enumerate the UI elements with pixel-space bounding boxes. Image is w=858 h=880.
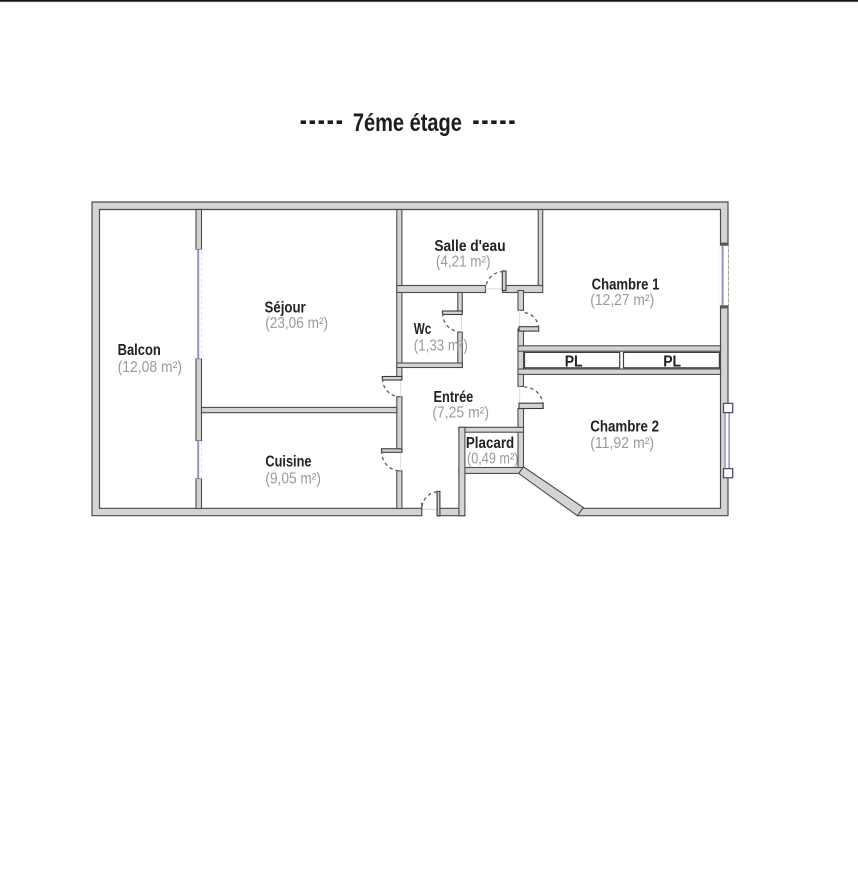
svg-text:(4,21 m²): (4,21 m²) — [436, 254, 491, 271]
svg-text:(12,27 m²): (12,27 m²) — [590, 292, 654, 309]
svg-text:Balcon: Balcon — [118, 342, 161, 359]
svg-text:Salle d'eau: Salle d'eau — [434, 238, 505, 255]
svg-text:Cuisine: Cuisine — [265, 453, 311, 470]
svg-text:(11,92 m²): (11,92 m²) — [590, 435, 654, 452]
svg-text:(23,06 m²): (23,06 m²) — [265, 315, 328, 332]
svg-text:PL: PL — [565, 354, 583, 371]
svg-text:Séjour: Séjour — [265, 299, 306, 316]
svg-text:(1,33 m²): (1,33 m²) — [414, 338, 468, 355]
svg-text:7éme étage: 7éme étage — [353, 109, 462, 137]
svg-text:(7,25 m²): (7,25 m²) — [432, 404, 489, 421]
svg-text:(0,49 m²): (0,49 m²) — [467, 450, 518, 467]
svg-text:Chambre 2: Chambre 2 — [590, 418, 659, 435]
svg-text:(9,05 m²): (9,05 m²) — [265, 470, 321, 487]
svg-text:PL: PL — [663, 354, 681, 371]
svg-text:(12,08 m²): (12,08 m²) — [118, 359, 182, 376]
svg-text:Wc: Wc — [414, 321, 432, 338]
